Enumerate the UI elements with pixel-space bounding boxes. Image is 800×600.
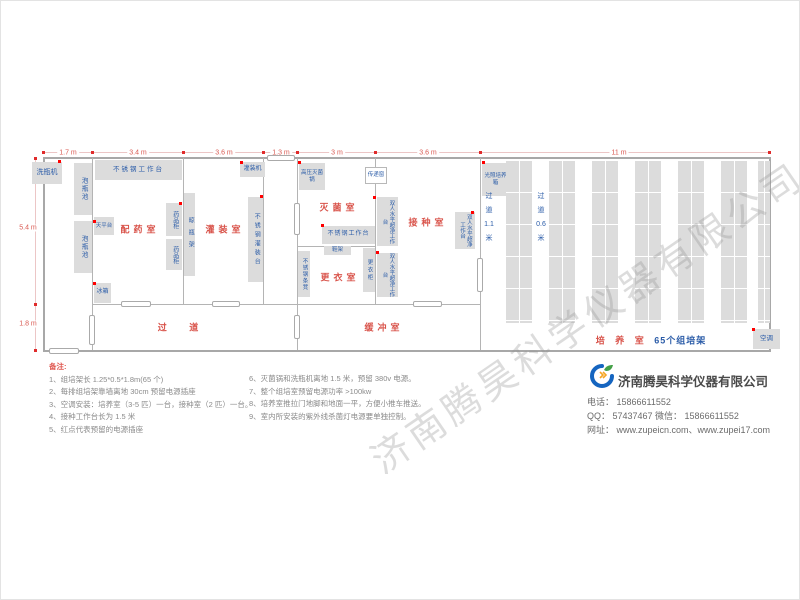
notes-right-column: 6、灭菌锅和洗瓶机离地 1.5 米，预留 380v 电源。 7、整个组培室预留电… xyxy=(249,375,426,425)
door xyxy=(89,315,95,345)
dim-label: 3 m xyxy=(329,150,345,157)
soaking-pool-box: 泡瓶池 xyxy=(74,163,92,215)
power-outlet-dot xyxy=(321,224,324,227)
note-item: 2、每排组培架靠墙离地 30cm 预留电源插座 xyxy=(49,388,252,396)
culture-rack xyxy=(758,161,770,323)
note-item: 6、灭菌锅和洗瓶机离地 1.5 米，预留 380v 电源。 xyxy=(249,375,426,383)
dimension-tick xyxy=(34,349,37,352)
culture-rack xyxy=(592,161,618,323)
door xyxy=(212,301,240,307)
culture-rack xyxy=(635,161,661,323)
soaking-pool-box: 泡瓶池 xyxy=(74,221,92,273)
door xyxy=(121,301,151,307)
company-logo xyxy=(589,363,615,389)
filling-machine-box: 灌装机 xyxy=(240,162,265,177)
power-outlet-dot xyxy=(376,251,379,254)
dimension-tick xyxy=(768,151,771,154)
dim-label: 3.6 m xyxy=(417,150,439,157)
dimension-tick xyxy=(34,157,37,160)
power-outlet-dot xyxy=(179,202,182,205)
bottle-washer-box: 洗瓶机 xyxy=(32,162,62,184)
note-item: 5、红点代表预留的电源插座 xyxy=(49,426,252,434)
note-item: 4、接种工作台长为 1.5 米 xyxy=(49,413,252,421)
autoclave-box: 高压灭菌锅 xyxy=(299,163,325,190)
culture-rack xyxy=(721,161,747,323)
room-label-culture: 培 养 室 65个组培架 xyxy=(596,337,707,346)
notes-heading: 备注: xyxy=(49,363,252,371)
culture-rack xyxy=(549,161,575,323)
ss-worktable-box: 不锈钢工作台 xyxy=(95,160,182,180)
dimension-tick xyxy=(91,151,94,154)
company-name: 济南腾昊科学仪器有限公司 xyxy=(618,371,768,390)
pass-window-box: 传递窗 xyxy=(365,167,387,184)
room-label-inoculation: 接种室 xyxy=(408,219,447,228)
note-item: 9、室内所安装的紫外线杀菌灯电源要单独控制。 xyxy=(249,413,426,421)
note-item: 8、培养室推拉门地脚和地面一平，方便小推车推送。 xyxy=(249,400,426,408)
medicine-cabinet-box: 药品柜 xyxy=(166,203,182,236)
wall xyxy=(263,158,264,304)
clean-bench-box: 双人水平超净工作台 xyxy=(455,212,475,249)
note-item: 3、空调安装：培养室（3-5 匹）一台，接种室（2 匹）一台。 xyxy=(49,401,252,409)
clean-bench-box: 双人水平超净工作台 xyxy=(377,253,398,297)
bottle-rack-box: 晾瓶架 xyxy=(184,193,195,276)
room-label-corridor: 过 道 xyxy=(158,324,209,333)
balance-table-box: 天平台 xyxy=(94,217,114,235)
aisle-label-1-1m: 过 道 1.1 米 xyxy=(482,193,496,242)
power-outlet-dot xyxy=(752,328,755,331)
dimension-tick xyxy=(296,151,299,154)
air-conditioner-box: 空调 xyxy=(753,329,780,349)
ss-filling-table-box: 不锈钢灌装台 xyxy=(248,197,263,282)
company-website: 网址： www.zupeicn.com、www.zupei17.com xyxy=(587,423,770,436)
light-incubator-box: 光照培养箱 xyxy=(482,163,509,196)
dim-label: 5.4 m xyxy=(17,225,39,232)
power-outlet-dot xyxy=(373,196,376,199)
dimension-tick xyxy=(262,151,265,154)
floor-plan-page: 1.7 m 3.4 m 3.6 m 1.3 m 3 m 3.6 m 11 m 5… xyxy=(0,0,800,600)
ss-worktable-box: 不锈钢工作台 xyxy=(322,226,375,244)
wall xyxy=(43,157,771,159)
power-outlet-dot xyxy=(298,161,301,164)
note-item: 7、整个组培室预留电源功率 >100kw xyxy=(249,388,426,396)
culture-rack xyxy=(678,161,704,323)
room-label-changing: 更衣室 xyxy=(320,274,359,283)
dim-label: 1.8 m xyxy=(17,321,39,328)
room-label-buffer: 缓冲室 xyxy=(364,324,403,333)
door xyxy=(49,348,79,354)
power-outlet-dot xyxy=(471,211,474,214)
company-qq-wechat: QQ： 57437467 微信： 15866611552 xyxy=(587,409,739,422)
fridge-box: 冰箱 xyxy=(94,283,111,303)
door xyxy=(413,301,442,307)
notes-left-column: 备注: 1、组培架长 1.25*0.5*1.8m(65 个) 2、每排组培架靠墙… xyxy=(49,363,252,438)
door xyxy=(294,203,300,235)
dim-label: 3.4 m xyxy=(127,150,149,157)
room-label-sterilization: 灭菌室 xyxy=(319,204,358,213)
dimension-tick xyxy=(374,151,377,154)
dimension-tick xyxy=(479,151,482,154)
locker-box: 更衣柜 xyxy=(363,248,375,292)
door xyxy=(294,315,300,339)
wall xyxy=(480,158,481,350)
wall xyxy=(43,157,45,352)
dimension-tick xyxy=(182,151,185,154)
top-dimension-line xyxy=(43,152,771,153)
medicine-cabinet-box: 药品柜 xyxy=(166,239,182,270)
power-outlet-dot xyxy=(260,195,263,198)
power-outlet-dot xyxy=(93,220,96,223)
note-item: 1、组培架长 1.25*0.5*1.8m(65 个) xyxy=(49,376,252,384)
dimension-tick xyxy=(42,151,45,154)
room-label-prep: 配药室 xyxy=(120,226,159,235)
ss-bench-box: 不锈钢条凳 xyxy=(298,251,310,297)
aisle-label-0-6m: 过 道 0.6 米 xyxy=(534,193,548,242)
dimension-tick xyxy=(34,303,37,306)
wall xyxy=(43,350,771,352)
power-outlet-dot xyxy=(482,161,485,164)
shoe-rack-box: 鞋架 xyxy=(324,246,351,255)
power-outlet-dot xyxy=(240,161,243,164)
dim-label: 3.6 m xyxy=(213,150,235,157)
door xyxy=(477,258,483,292)
power-outlet-dot xyxy=(93,282,96,285)
clean-bench-box: 双人水平超净工作台 xyxy=(377,197,398,246)
room-label-filling: 灌装室 xyxy=(205,226,244,235)
culture-rack xyxy=(506,161,532,323)
company-phone: 电话： 15866611552 xyxy=(587,395,671,408)
door xyxy=(267,155,295,161)
dim-label: 11 m xyxy=(609,150,628,157)
power-outlet-dot xyxy=(58,160,61,163)
dim-label: 1.7 m xyxy=(57,150,79,157)
